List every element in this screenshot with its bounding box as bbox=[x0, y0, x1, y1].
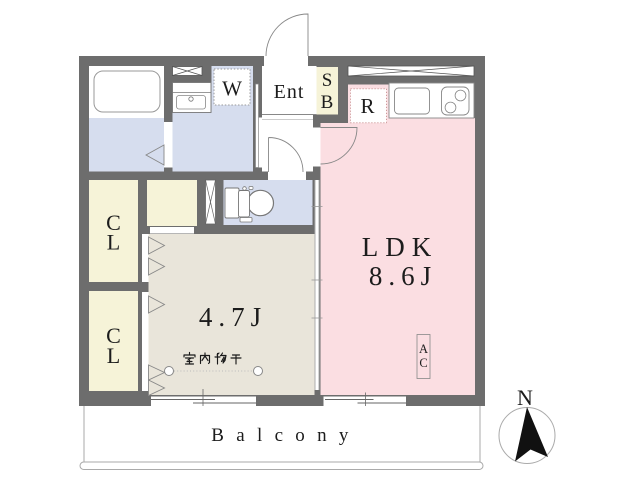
svg-text:Ent: Ent bbox=[274, 81, 305, 103]
svg-text:A: A bbox=[419, 342, 428, 356]
svg-text:B: B bbox=[321, 92, 334, 113]
svg-text:W: W bbox=[222, 77, 242, 101]
svg-text:Balcony: Balcony bbox=[211, 425, 360, 446]
svg-text:N: N bbox=[517, 385, 533, 410]
svg-text:C: C bbox=[419, 356, 427, 370]
svg-text:L: L bbox=[107, 343, 120, 368]
svg-text:S: S bbox=[322, 70, 333, 91]
svg-text:LDK: LDK bbox=[362, 232, 439, 262]
svg-text:4.7J: 4.7J bbox=[199, 302, 267, 332]
svg-text:R: R bbox=[360, 94, 374, 118]
svg-text:8.6J: 8.6J bbox=[369, 261, 437, 291]
svg-text:L: L bbox=[107, 230, 120, 255]
